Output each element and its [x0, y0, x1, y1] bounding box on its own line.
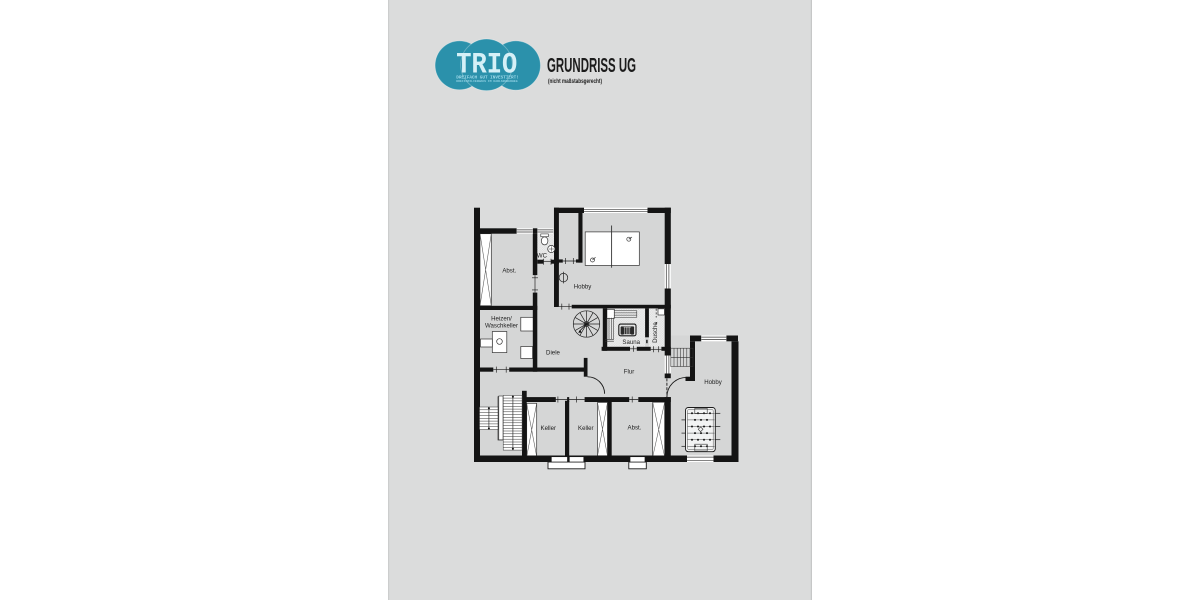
svg-text:Abst.: Abst.: [628, 425, 642, 432]
svg-text:Diele: Diele: [546, 349, 560, 356]
svg-text:DREIFAMILIENHAUS IM KARLSRUHER: DREIFAMILIENHAUS IM KARLSRUHERWEG: [456, 79, 517, 83]
svg-text:Sauna: Sauna: [622, 339, 640, 346]
svg-text:Keller: Keller: [541, 425, 557, 432]
svg-text:Abst.: Abst.: [502, 267, 516, 274]
svg-text:Hobby: Hobby: [574, 283, 593, 290]
svg-text:Flur: Flur: [624, 368, 635, 375]
svg-text:Dusche: Dusche: [652, 322, 659, 343]
svg-text:Waschkeller: Waschkeller: [485, 322, 518, 329]
svg-text:WC: WC: [537, 252, 548, 259]
svg-text:Hobby: Hobby: [704, 379, 723, 386]
svg-text:Keller: Keller: [578, 425, 594, 432]
svg-text:GRUNDRISS UG: GRUNDRISS UG: [547, 54, 636, 77]
svg-text:(nicht maßstabsgerecht): (nicht maßstabsgerecht): [548, 78, 602, 85]
